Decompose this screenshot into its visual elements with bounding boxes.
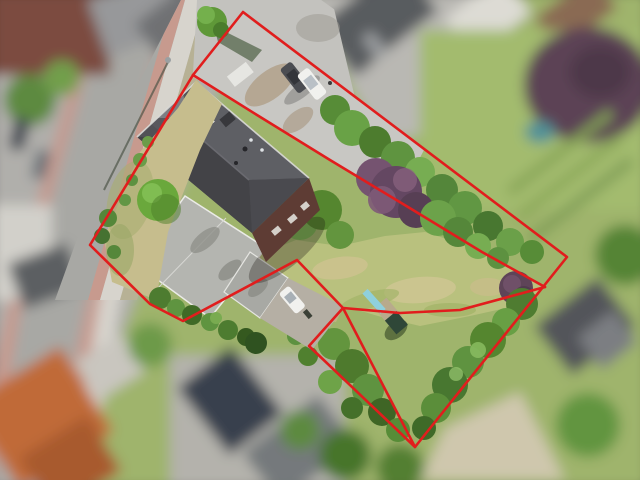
hedge-blur xyxy=(280,410,320,450)
pavement-shade xyxy=(296,14,340,42)
small-object xyxy=(328,81,332,85)
parking-tree-shade xyxy=(213,22,229,38)
tree-blur xyxy=(44,60,80,96)
tree-blur xyxy=(556,393,620,457)
lamppost xyxy=(165,57,171,63)
roof-vent xyxy=(234,161,238,165)
purple-tree-core-blur xyxy=(570,46,630,98)
aerial-photo xyxy=(0,0,640,480)
round-bush-shade xyxy=(151,194,181,224)
tree-blur xyxy=(128,323,172,367)
roof-dot xyxy=(260,148,264,152)
aerial-photo-canvas xyxy=(0,0,640,480)
teal-pool-blur xyxy=(525,121,555,143)
hedge-blur xyxy=(319,429,371,480)
roof-dot xyxy=(249,138,253,142)
parking-tree-highlight xyxy=(197,6,215,24)
roof-vent xyxy=(243,147,248,152)
